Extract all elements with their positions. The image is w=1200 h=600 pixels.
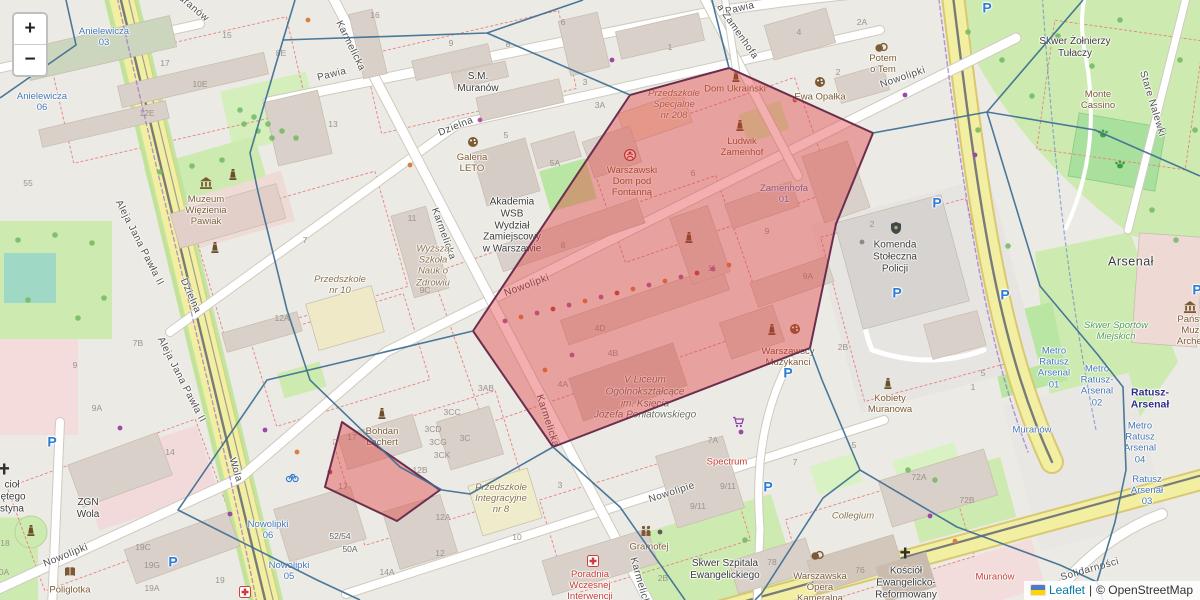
poi-dot <box>328 470 333 475</box>
poi-dot <box>615 291 620 296</box>
tree-icon <box>975 127 981 133</box>
poi-dot <box>711 267 716 272</box>
poi-dot <box>570 353 575 358</box>
tree-icon <box>1089 63 1095 69</box>
map-shape <box>0 325 78 435</box>
poi-dot <box>543 368 548 373</box>
tree-icon <box>15 237 21 243</box>
poi-dot <box>739 430 744 435</box>
tree-icon <box>905 467 911 473</box>
poi-dot <box>567 303 572 308</box>
tree-icon <box>1029 93 1035 99</box>
poi-dot <box>306 18 311 23</box>
poi-dot <box>679 275 684 280</box>
ukraine-flag-icon <box>1031 585 1045 595</box>
poi-dot <box>953 539 958 544</box>
poi-dot <box>610 58 615 63</box>
palette-icon <box>790 324 800 334</box>
person-icon <box>625 150 636 161</box>
tree-icon <box>1117 17 1123 23</box>
poi-dot <box>118 426 123 431</box>
tree-icon <box>52 232 58 238</box>
tree-icon <box>75 315 81 321</box>
poi-dot <box>295 450 300 455</box>
poi-dot <box>478 118 483 123</box>
tree-icon <box>269 135 275 141</box>
poi-dot <box>663 279 668 284</box>
firstaid-icon <box>588 556 599 567</box>
tree-icon <box>237 107 243 113</box>
palette-icon <box>468 137 478 147</box>
tree-icon <box>25 297 31 303</box>
tree-icon <box>1177 57 1183 63</box>
poi-dot <box>519 315 524 320</box>
tree-icon <box>251 114 257 120</box>
poi-dot <box>599 295 604 300</box>
map-canvas[interactable]: PawiaPawiaDzielnaDzielnaKarmelickaKarmel… <box>0 0 1200 600</box>
poi-dot <box>658 530 663 535</box>
palette-icon <box>815 77 825 87</box>
tree-icon <box>219 157 225 163</box>
poi-dot <box>793 98 798 103</box>
poi-dot <box>647 283 652 288</box>
tree-icon <box>697 557 703 563</box>
poi-dot <box>695 271 700 276</box>
tree-icon <box>157 169 163 175</box>
poi-dot <box>727 263 732 268</box>
tree-icon <box>101 295 107 301</box>
poi-dot <box>973 153 978 158</box>
tree-icon <box>1055 33 1061 39</box>
poi-dot <box>228 512 233 517</box>
tree-icon <box>1005 243 1011 249</box>
tree-icon <box>657 542 663 548</box>
attribution-bar: Leaflet | © OpenStreetMap <box>1024 581 1200 600</box>
attribution-separator: | <box>1089 583 1092 597</box>
tree-icon <box>255 128 261 134</box>
tree-icon <box>932 477 938 483</box>
tree-icon <box>1173 237 1179 243</box>
base-map <box>0 0 1200 600</box>
map-shape <box>1132 233 1200 347</box>
leaflet-link[interactable]: Leaflet <box>1049 583 1085 597</box>
tree-icon <box>999 57 1005 63</box>
zoom-out-button[interactable]: − <box>14 45 46 75</box>
osm-attribution[interactable]: © OpenStreetMap <box>1096 583 1193 597</box>
tree-icon <box>265 121 271 127</box>
tree-icon <box>1192 127 1198 133</box>
poi-dot <box>860 240 865 245</box>
zoom-control: + − <box>12 12 48 77</box>
poi-dot <box>583 299 588 304</box>
tree-icon <box>189 163 195 169</box>
map-shape <box>4 253 56 303</box>
tree-icon <box>742 537 748 543</box>
poi-dot <box>535 311 540 316</box>
poi-dot <box>551 307 556 312</box>
tree-icon <box>241 121 247 127</box>
zoom-in-button[interactable]: + <box>14 14 46 45</box>
tree-icon <box>279 128 285 134</box>
firstaid-icon <box>240 587 251 598</box>
book-icon <box>65 567 75 576</box>
poi-dot <box>503 319 508 324</box>
tree-icon <box>293 135 299 141</box>
poi-dot <box>408 163 413 168</box>
poi-dot <box>631 287 636 292</box>
poi-dot <box>263 428 268 433</box>
tree-icon <box>965 29 971 35</box>
poi-dot <box>928 514 933 519</box>
tree-icon <box>89 240 95 246</box>
poi-dot <box>903 93 908 98</box>
tree-icon <box>1149 207 1155 213</box>
